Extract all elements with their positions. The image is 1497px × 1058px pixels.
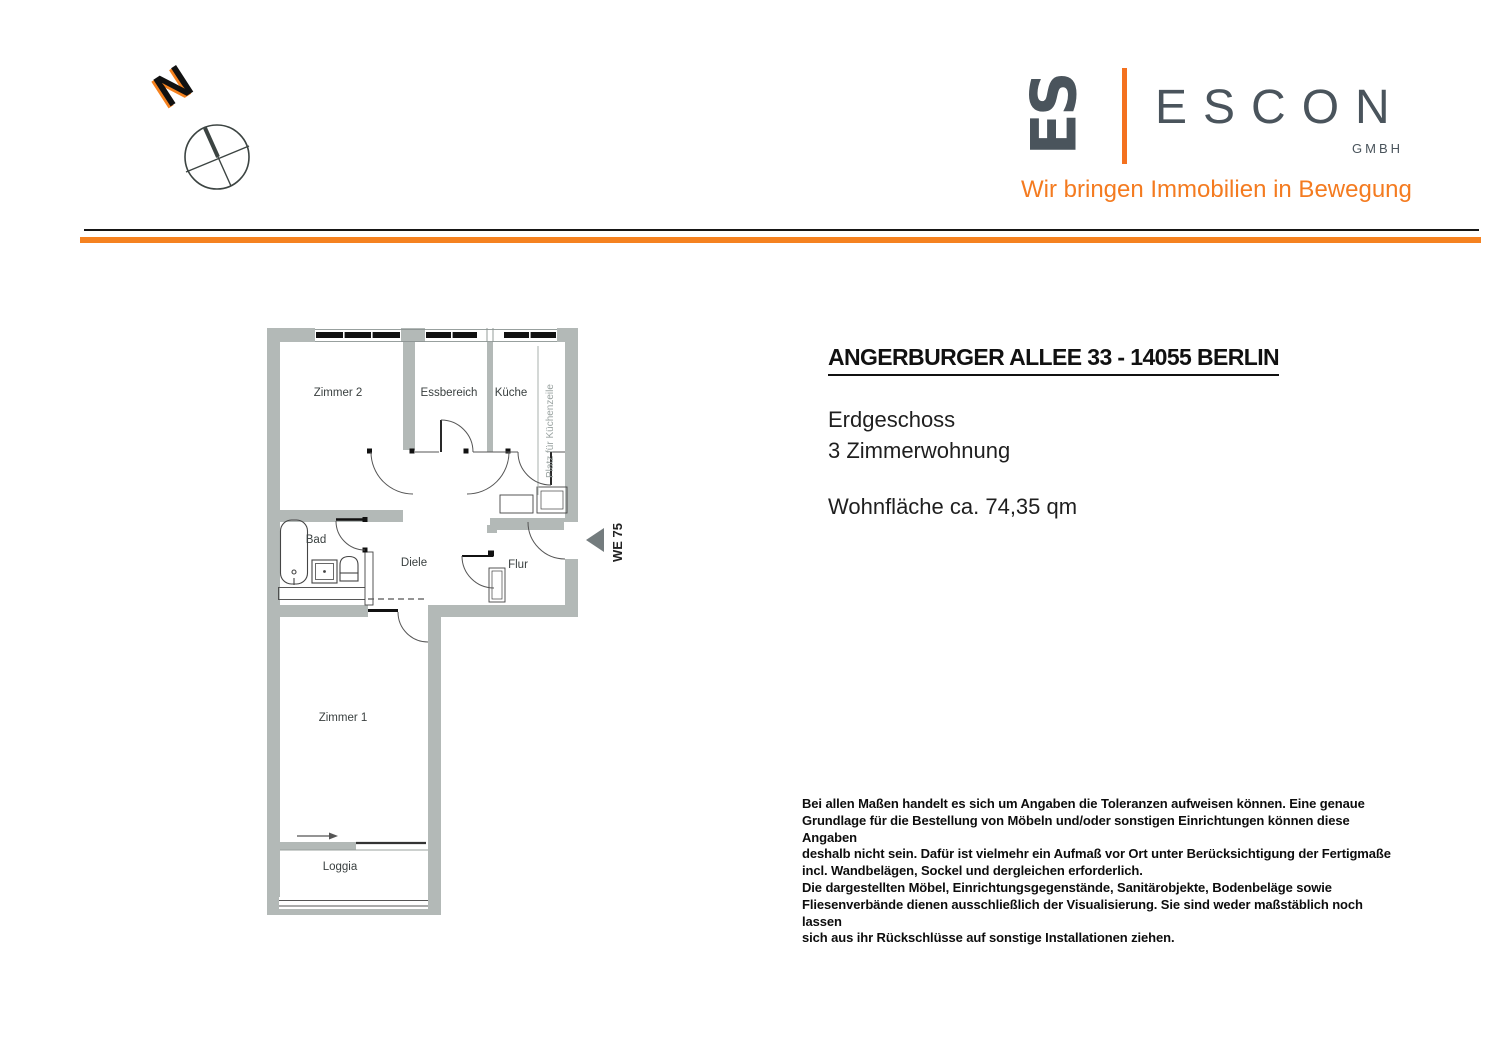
label-essbereich: Essbereich	[421, 387, 478, 399]
label-bad: Bad	[306, 534, 326, 546]
plan-walls	[267, 328, 578, 915]
diele-opening-arc-left	[371, 452, 413, 494]
entrance-arrow-icon	[586, 528, 604, 552]
bad-wall-strip	[365, 552, 373, 605]
bad-door-arc	[336, 521, 365, 550]
compass-north-icon: N N	[143, 55, 249, 189]
diele-opening-arc-right	[467, 452, 509, 494]
label-loggia: Loggia	[323, 861, 358, 873]
label-diele: Diele	[401, 557, 427, 569]
floorplan-drawing: N N	[0, 0, 1497, 1058]
window-zimmer2	[316, 332, 400, 338]
bath-fixtures	[279, 520, 374, 605]
compass-n-label: N	[145, 55, 201, 117]
toilet	[340, 557, 358, 574]
unit-number-label: WE 75	[610, 523, 625, 562]
label-zimmer2: Zimmer 2	[314, 387, 363, 399]
door-posts	[363, 449, 511, 557]
label-zimmer1: Zimmer 1	[319, 712, 368, 724]
label-kuechenzeile: Platz für Küchenzeile	[545, 384, 556, 478]
label-kueche: Küche	[495, 387, 528, 399]
shafts	[489, 487, 567, 602]
bath-cabinet	[279, 588, 368, 600]
kueche-shaft-small	[500, 495, 533, 513]
label-flur: Flur	[508, 559, 528, 571]
essbereich-door-arc	[441, 420, 473, 452]
flur-shaft	[489, 568, 505, 602]
